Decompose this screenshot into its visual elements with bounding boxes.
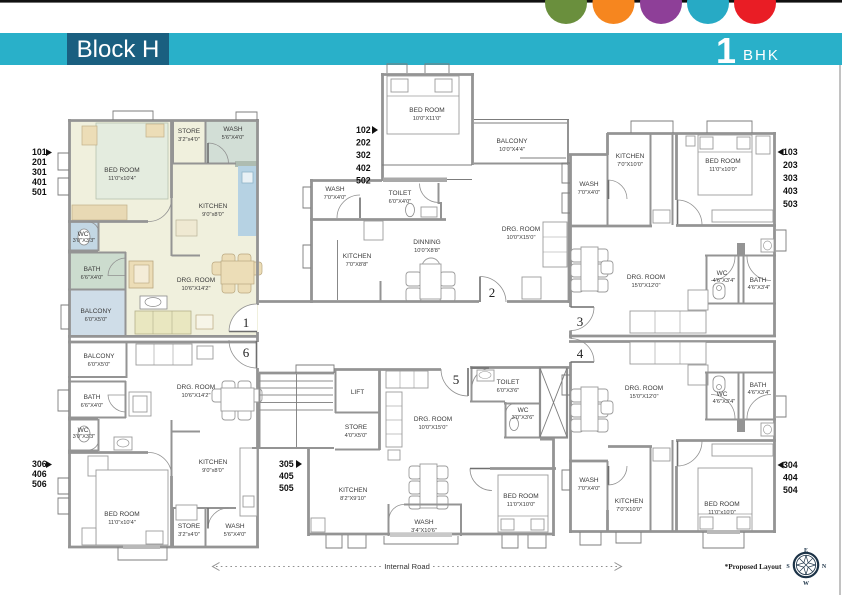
- svg-text:4'0"X5'0": 4'0"X5'0": [345, 433, 368, 439]
- svg-text:WC: WC: [717, 270, 728, 277]
- svg-text:BED ROOM: BED ROOM: [104, 167, 139, 174]
- svg-text:6'6"X4'0": 6'6"X4'0": [81, 275, 104, 281]
- svg-text:BED ROOM: BED ROOM: [104, 511, 139, 518]
- svg-text:WASH: WASH: [579, 477, 599, 484]
- svg-text:3: 3: [577, 314, 584, 329]
- svg-text:DRG. ROOM: DRG. ROOM: [627, 274, 665, 281]
- svg-text:WASH: WASH: [223, 126, 243, 133]
- svg-text:KITCHEN: KITCHEN: [199, 203, 228, 210]
- svg-text:BATH: BATH: [84, 266, 101, 273]
- svg-text:STORE: STORE: [178, 523, 201, 530]
- svg-text:11'0"X10'0": 11'0"X10'0": [507, 502, 536, 508]
- svg-text:7'0"X8'8": 7'0"X8'8": [346, 262, 369, 268]
- svg-text:304404504: 304404504: [783, 460, 798, 495]
- svg-text:7'0"X4'0": 7'0"X4'0": [324, 195, 347, 201]
- svg-text:KITCHEN: KITCHEN: [616, 153, 645, 160]
- svg-text:5'6"X4'0": 5'6"X4'0": [222, 135, 245, 141]
- svg-text:3'0"X3'3": 3'0"X3'3": [73, 434, 96, 440]
- svg-text:BALCONY: BALCONY: [80, 308, 112, 315]
- svg-text:10'0"X15'0": 10'0"X15'0": [419, 425, 448, 431]
- svg-text:STORE: STORE: [178, 128, 201, 135]
- svg-text:WC: WC: [717, 391, 728, 398]
- svg-text:KITCHEN: KITCHEN: [343, 253, 372, 260]
- svg-text:DRG. ROOM: DRG. ROOM: [177, 384, 215, 391]
- svg-text:6: 6: [243, 345, 250, 360]
- svg-text:KITCHEN: KITCHEN: [199, 459, 228, 466]
- svg-text:3'2"x4'0": 3'2"x4'0": [178, 137, 200, 143]
- svg-text:7'0"X10'0": 7'0"X10'0": [616, 507, 642, 513]
- svg-text:DINNING: DINNING: [413, 239, 440, 246]
- svg-text:11'0"x10'4": 11'0"x10'4": [108, 176, 136, 182]
- svg-text:4: 4: [577, 346, 584, 361]
- svg-text:*Proposed Layout: *Proposed Layout: [725, 562, 782, 571]
- svg-text:11'0"x10'0": 11'0"x10'0": [709, 167, 737, 173]
- svg-text:W: W: [803, 581, 809, 587]
- svg-text:BALCONY: BALCONY: [83, 353, 115, 360]
- svg-text:BED ROOM: BED ROOM: [503, 493, 538, 500]
- svg-text:4'6"X3'4": 4'6"X3'4": [713, 399, 736, 405]
- svg-text:BATH: BATH: [750, 382, 767, 389]
- svg-text:DRG. ROOM: DRG. ROOM: [414, 416, 452, 423]
- svg-text:7'0"X4'0": 7'0"X4'0": [578, 486, 601, 492]
- svg-text:KITCHEN: KITCHEN: [615, 498, 644, 505]
- svg-text:6'0"X5'0": 6'0"X5'0": [88, 362, 111, 368]
- svg-text:WC: WC: [78, 427, 89, 434]
- svg-text:8'2"X9'10": 8'2"X9'10": [340, 496, 366, 502]
- svg-text:3'0"X3'6": 3'0"X3'6": [512, 415, 535, 421]
- svg-text:10'6"X14'2": 10'6"X14'2": [182, 286, 211, 292]
- svg-text:10'0"X15'0": 10'0"X15'0": [507, 235, 536, 241]
- svg-text:BED ROOM: BED ROOM: [705, 158, 740, 165]
- svg-text:WC: WC: [78, 231, 89, 238]
- svg-text:WASH: WASH: [225, 523, 245, 530]
- svg-text:10'0"X8'8": 10'0"X8'8": [414, 248, 440, 254]
- svg-text:Internal Road: Internal Road: [384, 562, 430, 571]
- svg-text:DRG. ROOM: DRG. ROOM: [625, 385, 663, 392]
- svg-text:4'6"X3'4": 4'6"X3'4": [748, 285, 771, 291]
- svg-text:6'6"X4'0": 6'6"X4'0": [81, 403, 104, 409]
- svg-text:103203303403503: 103203303403503: [783, 147, 798, 209]
- svg-text:BATH: BATH: [750, 277, 767, 284]
- svg-text:7'0"X4'0": 7'0"X4'0": [578, 190, 601, 196]
- svg-text:WASH: WASH: [414, 519, 434, 526]
- svg-text:5: 5: [453, 372, 460, 387]
- svg-text:15'0"X12'0": 15'0"X12'0": [632, 283, 661, 289]
- svg-text:5'6"X4'0": 5'6"X4'0": [224, 532, 247, 538]
- svg-text:1: 1: [243, 315, 250, 330]
- svg-text:WASH: WASH: [579, 181, 599, 188]
- svg-text:11'0"x10'0": 11'0"x10'0": [708, 510, 736, 516]
- svg-text:4'6"X3'4": 4'6"X3'4": [713, 278, 736, 284]
- svg-text:BALCONY: BALCONY: [496, 138, 528, 145]
- svg-text:11'0"x10'4": 11'0"x10'4": [108, 520, 136, 526]
- svg-text:15'0"X12'0": 15'0"X12'0": [630, 394, 659, 400]
- svg-text:N: N: [822, 564, 827, 570]
- svg-text:Block H: Block H: [77, 36, 160, 63]
- svg-text:9'0"x8'0": 9'0"x8'0": [202, 212, 224, 218]
- svg-text:102202302402502: 102202302402502: [356, 125, 371, 185]
- svg-text:BATH: BATH: [84, 394, 101, 401]
- svg-text:TOILET: TOILET: [389, 190, 412, 197]
- svg-text:9'0"x8'0": 9'0"x8'0": [202, 468, 224, 474]
- svg-text:10'0"X11'0": 10'0"X11'0": [413, 116, 442, 122]
- svg-text:BED ROOM: BED ROOM: [409, 107, 444, 114]
- svg-text:3'2"x4'0": 3'2"x4'0": [178, 532, 200, 538]
- svg-text:1: 1: [716, 30, 736, 71]
- svg-text:7'0"X10'0": 7'0"X10'0": [617, 162, 643, 168]
- svg-text:STORE: STORE: [345, 424, 368, 431]
- svg-text:LIFT: LIFT: [351, 389, 364, 396]
- svg-text:101201301401501: 101201301401501: [32, 147, 47, 197]
- svg-text:4'6"X3'4": 4'6"X3'4": [748, 390, 771, 396]
- svg-text:2: 2: [489, 285, 496, 300]
- svg-text:E: E: [804, 548, 808, 554]
- svg-text:WC: WC: [518, 407, 529, 414]
- svg-text:6'0"X3'6": 6'0"X3'6": [497, 388, 520, 394]
- svg-text:KITCHEN: KITCHEN: [339, 487, 368, 494]
- svg-text:TOILET: TOILET: [497, 379, 520, 386]
- svg-text:DRG. ROOM: DRG. ROOM: [177, 277, 215, 284]
- svg-text:6'0"X5'0": 6'0"X5'0": [85, 317, 108, 323]
- svg-text:305405505: 305405505: [279, 459, 294, 493]
- svg-text:WASH: WASH: [325, 186, 345, 193]
- svg-text:3'0"X3'3": 3'0"X3'3": [73, 238, 96, 244]
- svg-text:BED ROOM: BED ROOM: [704, 501, 739, 508]
- svg-text:306406506: 306406506: [32, 459, 47, 489]
- svg-text:BHK: BHK: [743, 47, 780, 64]
- svg-text:6'0"X4'0": 6'0"X4'0": [389, 199, 412, 205]
- svg-text:10'6"X14'2": 10'6"X14'2": [182, 393, 211, 399]
- svg-text:DRG. ROOM: DRG. ROOM: [502, 226, 540, 233]
- svg-text:10'0"X4'4": 10'0"X4'4": [499, 147, 525, 153]
